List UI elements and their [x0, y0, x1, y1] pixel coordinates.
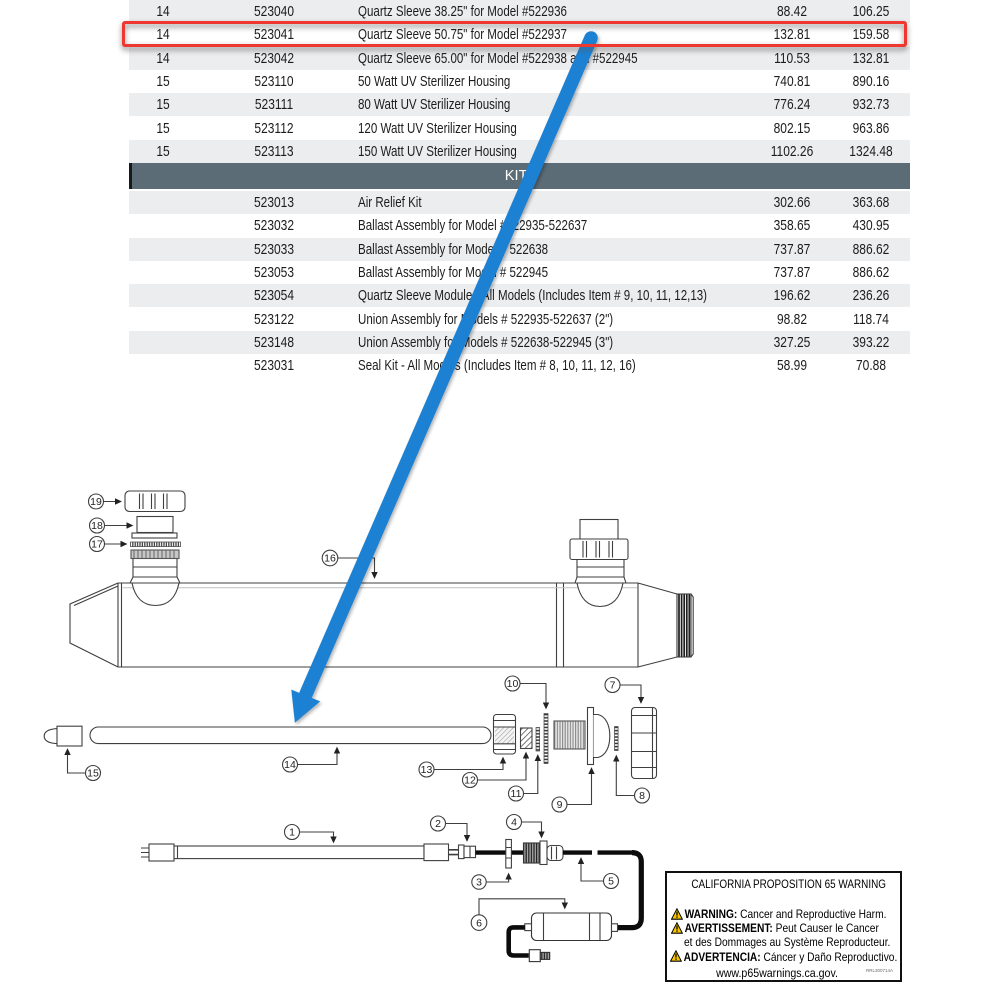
svg-text:14: 14 [284, 759, 296, 771]
svg-text:12: 12 [464, 775, 476, 787]
svg-text:13: 13 [421, 764, 433, 776]
svg-text:6: 6 [476, 917, 482, 929]
svg-text:17: 17 [91, 539, 103, 551]
svg-text:4: 4 [511, 817, 517, 829]
svg-text:10: 10 [507, 678, 519, 690]
svg-text:16: 16 [324, 553, 336, 565]
svg-text:8: 8 [639, 790, 645, 802]
svg-text:11: 11 [511, 788, 522, 800]
svg-text:15: 15 [87, 768, 99, 780]
svg-text:9: 9 [557, 799, 563, 811]
svg-text:5: 5 [608, 876, 614, 888]
svg-text:18: 18 [91, 520, 103, 532]
svg-text:7: 7 [610, 680, 616, 692]
svg-text:3: 3 [476, 877, 482, 889]
svg-text:2: 2 [435, 818, 441, 830]
svg-text:1: 1 [289, 827, 295, 839]
svg-text:19: 19 [90, 496, 102, 508]
